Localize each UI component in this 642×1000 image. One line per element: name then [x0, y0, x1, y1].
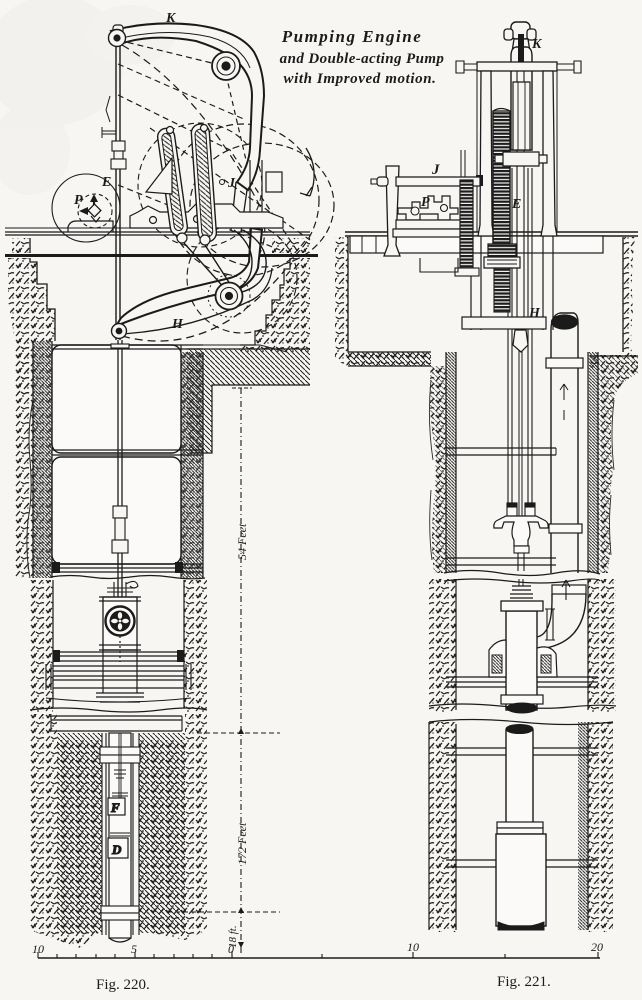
svg-text:with Improved motion.: with Improved motion. [283, 71, 436, 87]
svg-text:K: K [165, 11, 177, 26]
svg-text:Fig. 220.: Fig. 220. [96, 977, 150, 993]
svg-text:P: P [421, 195, 430, 210]
svg-text:K: K [531, 37, 543, 52]
svg-text:D: D [111, 842, 122, 857]
svg-text:10: 10 [407, 940, 419, 954]
svg-text:E: E [101, 175, 111, 190]
svg-text:F: F [110, 800, 120, 815]
svg-text:54 Feet: 54 Feet [235, 523, 249, 560]
svg-text:5: 5 [131, 942, 137, 956]
svg-text:Fig. 221.: Fig. 221. [497, 974, 551, 990]
svg-text:P: P [74, 193, 83, 208]
svg-text:H: H [171, 317, 184, 332]
svg-text:20: 20 [591, 940, 603, 954]
svg-text:10: 10 [32, 942, 44, 956]
svg-text:172 Feet: 172 Feet [235, 822, 249, 865]
svg-text:J: J [227, 176, 236, 191]
svg-text:J: J [431, 162, 440, 178]
svg-text:H: H [528, 306, 541, 321]
svg-text:and Double-acting Pump: and Double-acting Pump [280, 51, 445, 67]
svg-text:0: 0 [228, 942, 234, 956]
svg-text:Pumping Engine: Pumping Engine [281, 27, 423, 46]
svg-text:E: E [511, 197, 521, 212]
